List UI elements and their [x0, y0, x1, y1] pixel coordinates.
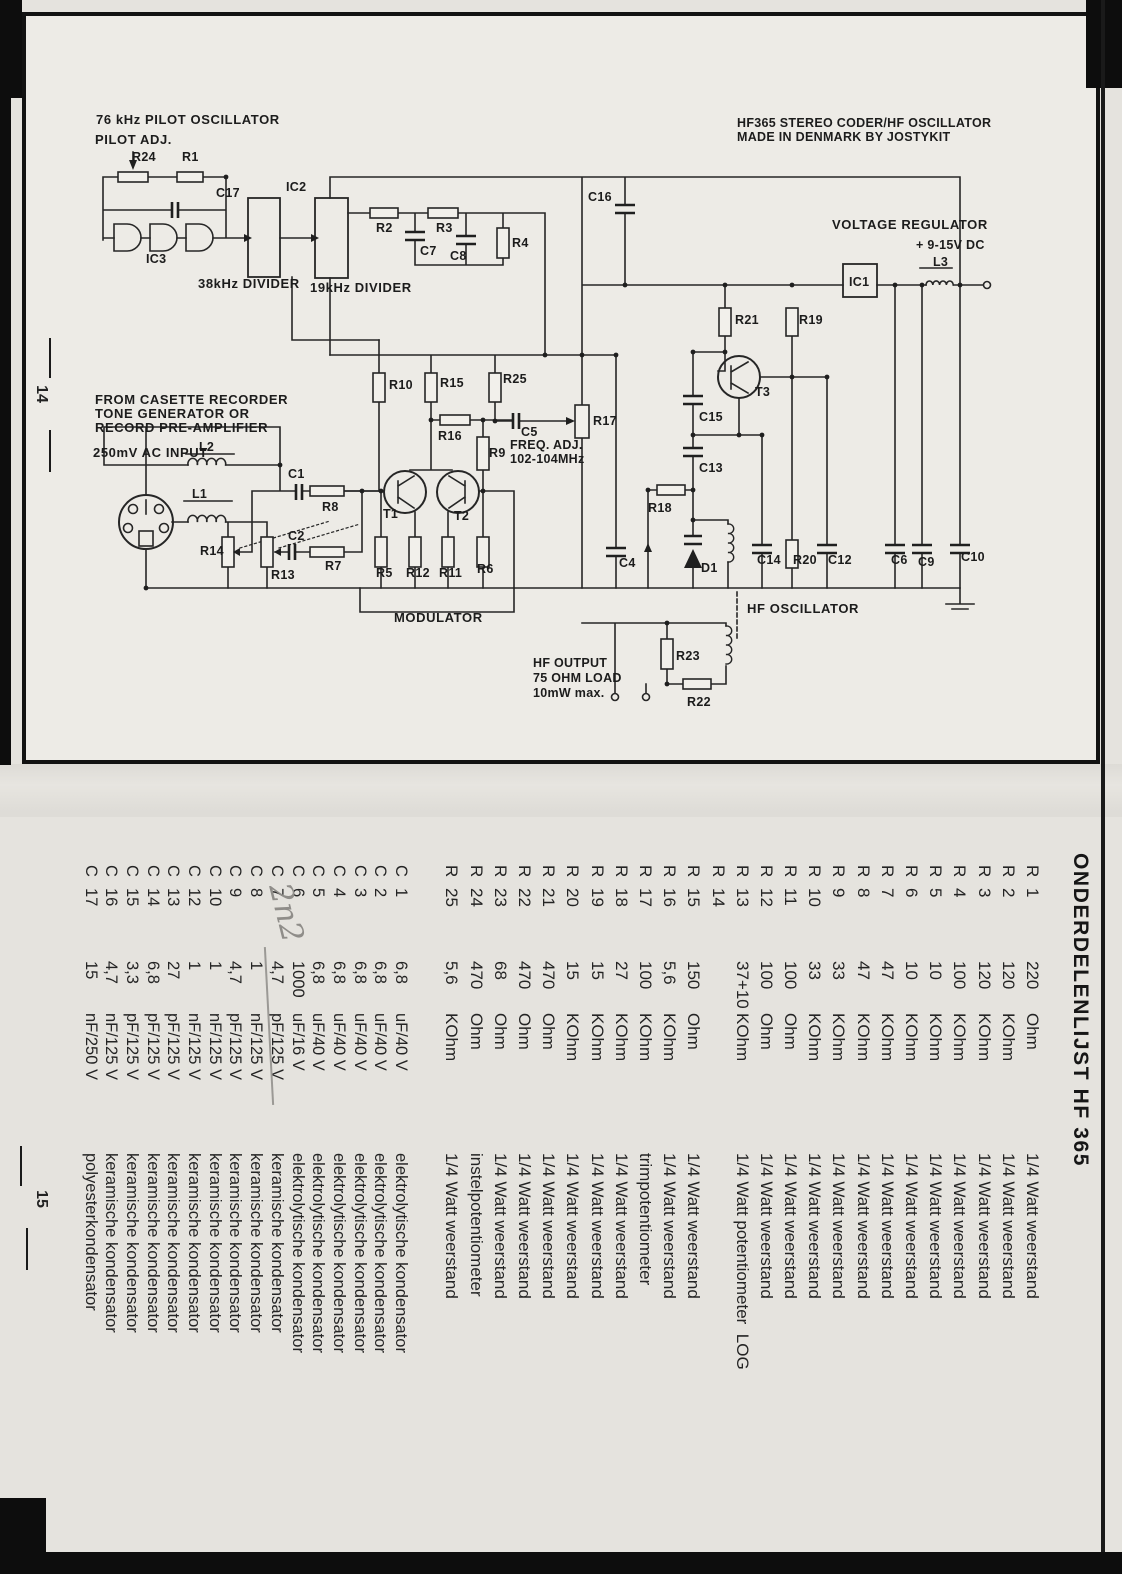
capacitor-list: C1 6,8 uF/40 V elektrolytische kondensat… — [79, 835, 410, 1435]
schematic-label: R21 — [735, 313, 759, 327]
part-unit: nF/125 V — [246, 1013, 265, 1080]
part-description: elektrolytische kondensator — [391, 1153, 410, 1353]
part-value: 1 — [184, 961, 203, 970]
margin-rule — [20, 1146, 22, 1186]
part-ref: C5 — [308, 865, 327, 897]
schematic-label: C7 — [420, 244, 437, 258]
schematic-label: T3 — [755, 385, 770, 399]
part-description: elektrolytische kondensator — [308, 1153, 327, 1353]
part-description: 1/4 Watt weerstand — [442, 1153, 462, 1299]
part-ref: C15 — [122, 865, 141, 906]
scan-edge-right — [1101, 0, 1105, 1574]
part-unit: uF/40 V — [329, 1013, 348, 1071]
parts-list-row: C17 15 nF/250 V polyesterkondensator — [79, 835, 100, 1435]
part-ref: C17 — [81, 865, 100, 906]
scan-edge-left — [0, 0, 11, 765]
schematic-label: R7 — [325, 559, 342, 573]
part-ref: C1 — [391, 865, 410, 897]
part-unit: KOhm — [635, 1013, 655, 1061]
part-description: elektrolytische kondensator — [350, 1153, 369, 1353]
parts-list-row: C15 3,3 pF/125 V keramische kondensator — [120, 835, 141, 1435]
parts-list-row: C9 4,7 pF/125 V keramische kondensator — [224, 835, 245, 1435]
part-description: 1/4 Watt weerstand — [490, 1153, 510, 1299]
part-description: 1/4 Watt weerstand — [998, 1153, 1018, 1299]
part-description: trimpotentiometer — [635, 1153, 655, 1285]
schematic-label: HF365 STEREO CODER/HF OSCILLATOR — [737, 116, 991, 130]
part-unit: Ohm — [490, 1013, 510, 1050]
parts-list-row: R9 33 KOhm 1/4 Watt weerstand — [824, 835, 848, 1435]
part-ref: C16 — [101, 865, 120, 906]
parts-list-row: R13 37+10 KOhm 1/4 Watt potentiometer LO… — [728, 835, 752, 1435]
schematic-label: IC1 — [849, 275, 869, 289]
schematic-label: 19kHz DIVIDER — [310, 280, 412, 295]
part-value: 470 — [538, 961, 558, 989]
schematic-label: L3 — [933, 255, 948, 269]
part-value: 150 — [683, 961, 703, 989]
part-description: 1/4 Watt weerstand — [901, 1153, 921, 1299]
schematic-label: C15 — [699, 410, 723, 424]
part-ref: C3 — [350, 865, 369, 897]
part-ref: R8 — [853, 865, 873, 897]
schematic-label: C14 — [757, 553, 781, 567]
part-description: 1/4 Watt weerstand — [562, 1153, 582, 1299]
part-description: 1/4 Watt weerstand — [587, 1153, 607, 1299]
parts-list-row: C2 6,8 uF/40 V elektrolytische kondensat… — [369, 835, 390, 1435]
schematic-label: R19 — [799, 313, 823, 327]
part-ref: C4 — [329, 865, 348, 897]
schematic-label: R23 — [676, 649, 700, 663]
part-description: keramische kondensator — [267, 1153, 286, 1333]
margin-rule — [26, 1228, 28, 1270]
parts-list-heading: ONDERDELENLIJST HF 365 — [1068, 853, 1092, 1167]
schematic-label: FROM CASETTE RECORDER — [95, 392, 288, 407]
part-value: 6,8 — [391, 961, 410, 984]
part-description: 1/4 Watt weerstand — [1022, 1153, 1042, 1299]
parts-list-row: C4 6,8 uF/40 V elektrolytische kondensat… — [327, 835, 348, 1435]
part-unit: KOhm — [732, 1013, 752, 1061]
part-unit: nF/125 V — [101, 1013, 120, 1080]
parts-list-row: R24 470 Ohm instelpotentiometer — [462, 835, 486, 1435]
part-description: keramische kondensator — [101, 1153, 120, 1333]
parts-list-row: C3 6,8 uF/40 V elektrolytische kondensat… — [348, 835, 369, 1435]
part-unit: Ohm — [514, 1013, 534, 1050]
part-ref: R10 — [804, 865, 824, 907]
parts-list-row: R1 220 Ohm 1/4 Watt weerstand — [1018, 835, 1042, 1435]
parts-list-row: C10 1 nF/125 V keramische kondensator — [203, 835, 224, 1435]
part-unit: KOhm — [442, 1013, 462, 1061]
schematic-label: R24 — [132, 150, 156, 164]
part-value: 33 — [829, 961, 849, 980]
part-unit: KOhm — [974, 1013, 994, 1061]
part-description: keramische kondensator — [184, 1153, 203, 1333]
part-ref: R9 — [829, 865, 849, 897]
schematic-label: C17 — [216, 186, 240, 200]
part-unit: Ohm — [1022, 1013, 1042, 1050]
schematic-label: + 9-15V DC — [916, 238, 985, 252]
part-value: 100 — [949, 961, 969, 989]
parts-list-row: R25 5,6 KOhm 1/4 Watt weerstand — [437, 835, 461, 1435]
schematic-label: D1 — [701, 561, 718, 575]
part-value: 6,8 — [350, 961, 369, 984]
part-unit: KOhm — [659, 1013, 679, 1061]
schematic-label: R8 — [322, 500, 339, 514]
part-unit: uF/40 V — [391, 1013, 410, 1071]
parts-list-row: R17 100 KOhm trimpotentiometer — [631, 835, 655, 1435]
schematic-label: C8 — [450, 249, 467, 263]
part-ref: R16 — [659, 865, 679, 907]
schematic-label: C10 — [961, 550, 985, 564]
part-description: elektrolytische kondensator — [370, 1153, 389, 1353]
parts-list-row: R8 47 KOhm 1/4 Watt weerstand — [849, 835, 873, 1435]
parts-list-row: R4 100 KOhm 1/4 Watt weerstand — [945, 835, 969, 1435]
schematic-label: TONE GENERATOR OR — [95, 406, 250, 421]
parts-list-row: R7 47 KOhm 1/4 Watt weerstand — [873, 835, 897, 1435]
part-description: keramische kondensator — [205, 1153, 224, 1333]
part-value: 5,6 — [659, 961, 679, 985]
parts-list-row: R10 33 KOhm 1/4 Watt weerstand — [800, 835, 824, 1435]
part-unit: uF/40 V — [308, 1013, 327, 1071]
schematic-label: R18 — [648, 501, 672, 515]
part-ref: R2 — [998, 865, 1018, 897]
part-value: 220 — [1022, 961, 1042, 989]
schematic-label: FREQ. ADJ. — [510, 438, 583, 452]
parts-list-row: C12 1 nF/125 V keramische kondensator — [182, 835, 203, 1435]
schematic-label: HF OUTPUT — [533, 656, 607, 670]
parts-list-row: C13 27 pF/125 V keramische kondensator — [162, 835, 183, 1435]
part-value: 37+10 — [732, 961, 752, 1009]
part-ref: C2 — [370, 865, 389, 897]
part-unit: Ohm — [780, 1013, 800, 1050]
parts-list-row: R14 — [703, 835, 727, 1435]
part-unit: Ohm — [538, 1013, 558, 1050]
part-value: 27 — [163, 961, 182, 979]
margin-rule — [49, 338, 51, 378]
part-ref: R24 — [466, 865, 486, 907]
schematic-label: C1 — [288, 467, 305, 481]
schematic-label: 76 kHz PILOT OSCILLATOR — [96, 112, 280, 127]
part-ref: R23 — [490, 865, 510, 907]
parts-list-row: C14 6,8 pF/125 V keramische kondensator — [141, 835, 162, 1435]
part-unit: KOhm — [998, 1013, 1018, 1061]
schematic-label: C6 — [891, 553, 908, 567]
part-unit: nF/125 V — [205, 1013, 224, 1080]
part-ref: R20 — [562, 865, 582, 907]
part-value: 470 — [466, 961, 486, 989]
schematic-label: C12 — [828, 553, 852, 567]
part-description: keramische kondensator — [163, 1153, 182, 1333]
part-ref: R15 — [683, 865, 703, 907]
schematic-label: MADE IN DENMARK BY JOSTYKIT — [737, 130, 950, 144]
schematic-label: VOLTAGE REGULATOR — [832, 217, 988, 232]
scan-edge-bottom — [0, 1552, 1122, 1574]
part-description: 1/4 Watt weerstand — [659, 1153, 679, 1299]
part-unit: KOhm — [877, 1013, 897, 1061]
part-unit: uF/16 V — [288, 1013, 307, 1071]
parts-list-row: R16 5,6 KOhm 1/4 Watt weerstand — [655, 835, 679, 1435]
schematic-label: C4 — [619, 556, 636, 570]
schematic-label: R15 — [440, 376, 464, 390]
part-value: 33 — [804, 961, 824, 980]
part-unit: nF/250 V — [81, 1013, 100, 1080]
part-description: keramische kondensator — [226, 1153, 245, 1333]
schematic-label: T1 — [383, 507, 398, 521]
schematic-label: R20 — [793, 553, 817, 567]
part-value: 10 — [925, 961, 945, 980]
parts-list-row: R19 15 KOhm 1/4 Watt weerstand — [582, 835, 606, 1435]
part-ref: R3 — [974, 865, 994, 897]
part-description: 1/4 Watt weerstand — [925, 1153, 945, 1299]
part-unit: KOhm — [804, 1013, 824, 1061]
part-value: 6,8 — [308, 961, 327, 984]
part-ref: R1 — [1022, 865, 1042, 897]
schematic-label: R25 — [503, 372, 527, 386]
part-value: 1000 — [288, 961, 307, 998]
part-unit: KOhm — [562, 1013, 582, 1061]
part-unit: uF/40 V — [370, 1013, 389, 1071]
part-unit: KOhm — [587, 1013, 607, 1061]
part-description: 1/4 Watt weerstand — [804, 1153, 824, 1299]
part-ref: R13 — [732, 865, 752, 907]
parts-list-row: R22 470 Ohm 1/4 Watt weerstand — [510, 835, 534, 1435]
parts-list-row: C16 4,7 nF/125 V keramische kondensator — [100, 835, 121, 1435]
part-value: 15 — [587, 961, 607, 980]
part-unit: nF/125 V — [184, 1013, 203, 1080]
part-description: keramische kondensator — [143, 1153, 162, 1333]
parts-list-row: R18 27 KOhm 1/4 Watt weerstand — [607, 835, 631, 1435]
schematic-label: IC2 — [286, 180, 306, 194]
parts-list-row: C5 6,8 uF/40 V elektrolytische kondensat… — [307, 835, 328, 1435]
part-description: keramische kondensator — [122, 1153, 141, 1333]
part-description: 1/4 Watt weerstand — [974, 1153, 994, 1299]
scan-corner-top-left — [0, 0, 22, 98]
part-unit: uF/40 V — [350, 1013, 369, 1071]
part-value: 6,8 — [143, 961, 162, 984]
part-unit: Ohm — [683, 1013, 703, 1050]
schematic-label: R13 — [271, 568, 295, 582]
scan-corner-bottom-left — [0, 1498, 46, 1574]
part-value: 100 — [756, 961, 776, 989]
part-value: 6,8 — [370, 961, 389, 984]
parts-list-row: R3 120 KOhm 1/4 Watt weerstand — [969, 835, 993, 1435]
schematic-label: R12 — [406, 566, 430, 580]
schematic-label: R3 — [436, 221, 453, 235]
part-description: 1/4 Watt weerstand — [611, 1153, 631, 1299]
parts-list-row: R21 470 Ohm 1/4 Watt weerstand — [534, 835, 558, 1435]
part-description: instelpotentiometer — [466, 1153, 486, 1297]
schematic-label: R1 — [182, 150, 199, 164]
parts-list-row: R12 100 Ohm 1/4 Watt weerstand — [752, 835, 776, 1435]
part-description: keramische kondensator — [246, 1153, 265, 1333]
schematic-label: R6 — [477, 562, 494, 576]
part-unit: KOhm — [829, 1013, 849, 1061]
part-value: 5,6 — [442, 961, 462, 985]
part-ref: C14 — [143, 865, 162, 906]
part-description: 1/4 Watt weerstand — [853, 1153, 873, 1299]
page-number-14: 14 — [32, 385, 50, 403]
parts-list-row: R23 68 Ohm 1/4 Watt weerstand — [486, 835, 510, 1435]
schematic-label: C13 — [699, 461, 723, 475]
part-value: 15 — [81, 961, 100, 979]
part-ref: C13 — [163, 865, 182, 906]
part-value: 47 — [853, 961, 873, 980]
part-description: 1/4 Watt weerstand — [949, 1153, 969, 1299]
schematic-label: R22 — [687, 695, 711, 709]
schematic-label: R11 — [439, 566, 462, 580]
part-ref: R7 — [877, 865, 897, 897]
part-value: 120 — [998, 961, 1018, 989]
parts-list: ONDERDELENLIJST HF 365 R1 220 Ohm 1/4 Wa… — [47, 835, 1092, 1435]
margin-rule — [49, 430, 51, 472]
part-unit: Ohm — [466, 1013, 486, 1050]
schematic-label: 10mW max. — [533, 686, 604, 700]
part-unit: pF/125 V — [143, 1013, 162, 1080]
parts-list-row: R2 120 KOhm 1/4 Watt weerstand — [994, 835, 1018, 1435]
part-ref: R12 — [756, 865, 776, 907]
schematic-label: R17 — [593, 414, 617, 428]
part-ref: R5 — [925, 865, 945, 897]
parts-list-row: R11 100 Ohm 1/4 Watt weerstand — [776, 835, 800, 1435]
part-unit: KOhm — [611, 1013, 631, 1061]
part-ref: R17 — [635, 865, 655, 907]
part-value: 4,7 — [101, 961, 120, 984]
part-unit: KOhm — [853, 1013, 873, 1061]
part-ref: C12 — [184, 865, 203, 906]
part-ref: R21 — [538, 865, 558, 907]
parts-list-row: R15 150 Ohm 1/4 Watt weerstand — [679, 835, 703, 1435]
schematic-label: 250mV AC INPUT — [93, 445, 208, 460]
part-ref: R18 — [611, 865, 631, 907]
part-value: 100 — [635, 961, 655, 989]
part-description: elektrolytische kondensator — [288, 1153, 307, 1353]
schematic-label: PILOT ADJ. — [95, 132, 172, 147]
schematic-label: C5 — [521, 425, 538, 439]
part-ref: R4 — [949, 865, 969, 897]
part-value: 1 — [246, 961, 265, 970]
part-value: 47 — [877, 961, 897, 980]
part-description: 1/4 Watt weerstand — [538, 1153, 558, 1299]
part-value: 100 — [780, 961, 800, 989]
part-ref: R25 — [442, 865, 462, 907]
part-ref: R19 — [587, 865, 607, 907]
schematic-label: R14 — [200, 544, 224, 558]
part-description: 1/4 Watt weerstand — [756, 1153, 776, 1299]
part-unit: pF/125 V — [163, 1013, 182, 1080]
schematic-label: R10 — [389, 378, 413, 392]
part-ref: C9 — [226, 865, 245, 897]
part-unit: KOhm — [949, 1013, 969, 1061]
parts-list-row: R20 15 KOhm 1/4 Watt weerstand — [558, 835, 582, 1435]
schematic-label: R2 — [376, 221, 393, 235]
schematic-label: HF OSCILLATOR — [747, 601, 859, 616]
part-description: elektrolytische kondensator — [329, 1153, 348, 1353]
part-unit: pF/125 V — [122, 1013, 141, 1080]
schematic-label: R4 — [512, 236, 529, 250]
resistor-list: R1 220 Ohm 1/4 Watt weerstand R2 120 KOh… — [437, 835, 1042, 1435]
part-value: 1 — [205, 961, 224, 970]
part-unit: Ohm — [756, 1013, 776, 1050]
part-value: 10 — [901, 961, 921, 980]
schematic-label: C9 — [918, 555, 935, 569]
part-description: 1/4 Watt weerstand — [877, 1153, 897, 1299]
part-description: 1/4 Watt weerstand — [780, 1153, 800, 1299]
part-value: 120 — [974, 961, 994, 989]
schematic-label: R16 — [438, 429, 462, 443]
schematic-label: C2 — [288, 529, 305, 543]
part-unit: KOhm — [901, 1013, 921, 1061]
part-value: 470 — [514, 961, 534, 989]
part-description: 1/4 Watt weerstand — [829, 1153, 849, 1299]
parts-list-row: R6 10 KOhm 1/4 Watt weerstand — [897, 835, 921, 1435]
part-value: 3,3 — [122, 961, 141, 984]
part-value: 4,7 — [267, 961, 286, 984]
part-value: 27 — [611, 961, 631, 980]
part-description: 1/4 Watt potentiometer LOG — [732, 1153, 752, 1370]
schematic-label: MODULATOR — [394, 610, 483, 625]
schematic-label: 102-104MHz — [510, 452, 585, 466]
schematic-label: R9 — [489, 446, 506, 460]
parts-list-row: R5 10 KOhm 1/4 Watt weerstand — [921, 835, 945, 1435]
part-description: 1/4 Watt weerstand — [683, 1153, 703, 1299]
schematic-label: 75 OHM LOAD — [533, 671, 622, 685]
part-value: 15 — [562, 961, 582, 980]
parts-list-row: C1 6,8 uF/40 V elektrolytische kondensat… — [389, 835, 410, 1435]
part-value: 6,8 — [329, 961, 348, 984]
part-value: 4,7 — [226, 961, 245, 984]
part-unit: pF/125 V — [226, 1013, 245, 1080]
schematic-label: 38kHz DIVIDER — [198, 276, 300, 291]
part-ref: R14 — [708, 865, 728, 907]
schematic-label: R5 — [376, 566, 393, 580]
schematic-label: T2 — [454, 509, 469, 523]
schematic-label: L1 — [192, 487, 207, 501]
part-ref: R22 — [514, 865, 534, 907]
part-ref: R11 — [780, 865, 800, 906]
part-ref: R6 — [901, 865, 921, 897]
part-description: polyesterkondensator — [81, 1153, 100, 1311]
schematic-label: C16 — [588, 190, 612, 204]
schematic-label: IC3 — [146, 252, 166, 266]
schematic-label: RECORD PRE-AMPLIFIER — [95, 420, 268, 435]
part-unit: KOhm — [925, 1013, 945, 1061]
part-value: 68 — [490, 961, 510, 980]
part-ref: C10 — [205, 865, 224, 906]
parts-list-row: C8 1 nF/125 V keramische kondensator — [245, 835, 266, 1435]
scanned-manual-page: 76 kHz PILOT OSCILLATOR PILOT ADJ. HF365… — [0, 0, 1122, 1574]
part-description: 1/4 Watt weerstand — [514, 1153, 534, 1299]
